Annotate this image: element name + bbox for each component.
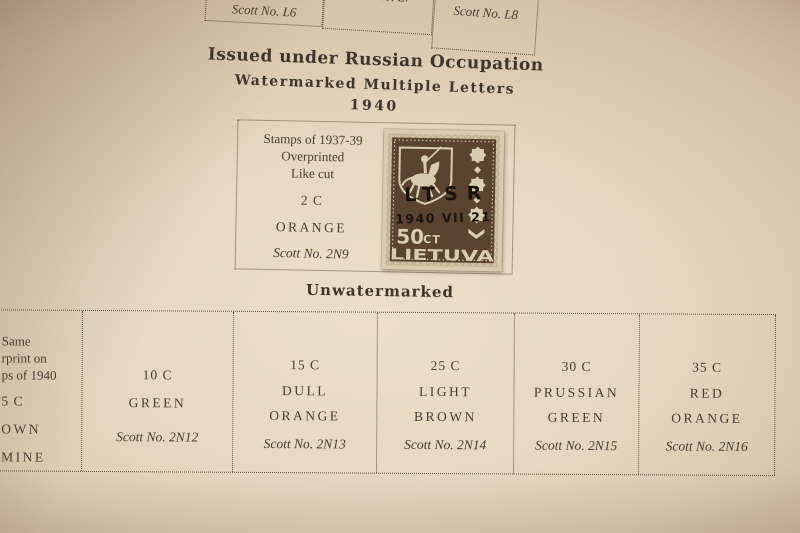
catalog-box-l7: AND GREEN Scott No. L7 [322,0,436,35]
catalog-box-2n13: 15 C DULL ORANGE Scott No. 2N13 [233,312,378,473]
note-line: Same [2,332,31,349]
color-name: LIGHT [419,383,472,399]
denomination: 35 C [692,359,722,375]
note-line: rprint on [2,349,47,366]
scott-number: Scott No. 2N12 [116,429,198,446]
stamp-design: 50 CT LIETUVA LTSR 1940 VII 21 [386,133,501,267]
color-name: MINE [1,449,46,465]
scott-number: Scott No. L8 [434,1,537,24]
catalog-box-2n16: 35 C RED ORANGE Scott No. 2N16 [639,314,776,475]
color-name: BROWN [414,408,477,424]
description-line: Overprinted [281,147,344,165]
description-line: Like cut [291,164,334,182]
catalog-box-2n15: 30 C PRUSSIAN GREEN Scott No. 2N15 [514,314,640,475]
denomination: 25 C [431,358,461,374]
catalog-box-2n12: 10 C GREEN Scott No. 2N12 [82,311,234,472]
section-heading: Issued under Russian Occupation Watermar… [154,43,596,122]
color-name: ORANGE [276,219,348,236]
color-name: RED [690,385,725,401]
color-name: PRUSSIAN [534,384,619,401]
color-name: DULL [282,383,328,399]
scott-number: Scott No. 2N16 [666,438,748,455]
color-name: ORANGE [671,410,742,426]
scott-number: Scott No. 2N9 [273,245,349,262]
scott-number: Scott No. 2N14 [404,436,486,453]
color-name: OWN [1,421,41,437]
denomination: 15 C [290,357,320,373]
denomination: 30 C [562,358,592,374]
denomination: 2 C [301,192,323,208]
catalog-box-2n14: 25 C LIGHT BROWN Scott No. 2N14 [377,313,515,474]
scott-number: Scott No. L6 [231,1,296,20]
album-page-photo: Scott No. L6 AND GREEN Scott No. L7 AND … [0,0,800,533]
color-name: GREEN [129,395,187,411]
stamp-description: Stamps of 1937-39 Overprinted Like cut 2… [236,120,389,271]
denomination: 10 C [143,367,173,383]
color-name: ORANGE [269,408,340,424]
section-heading-unwatermarked: Unwatermarked [270,280,490,301]
stamp-overprint: LTSR 1940 VII 21 [385,133,500,268]
scott-number: Scott No. 2N13 [264,435,346,452]
overprint-ltsr: LTSR [387,182,500,207]
scott-number: Scott No. L7 [325,0,434,7]
catalog-box-l6: Scott No. L6 [205,0,326,27]
catalog-box-cutoff: Same rprint on ps of 1940 5 C OWN MINE [0,310,83,471]
denomination: 5 C [1,393,23,409]
note-line: ps of 1940 [2,366,57,383]
color-name: GREEN [548,409,606,425]
stamp-lietuva-50ct: 50 CT LIETUVA LTSR 1940 VII 21 [382,129,505,271]
catalog-row: Same rprint on ps of 1940 5 C OWN MINE 1… [0,309,776,476]
overprint-date: 1940 VII 21 [387,209,499,227]
catalog-box-l8: AND ORANGE Scott No. L8 [431,0,541,56]
scott-number: Scott No. 2N15 [535,437,617,454]
catalog-box-2n9: Stamps of 1937-39 Overprinted Like cut 2… [235,119,516,274]
description-line: Stamps of 1937-39 [263,129,362,148]
